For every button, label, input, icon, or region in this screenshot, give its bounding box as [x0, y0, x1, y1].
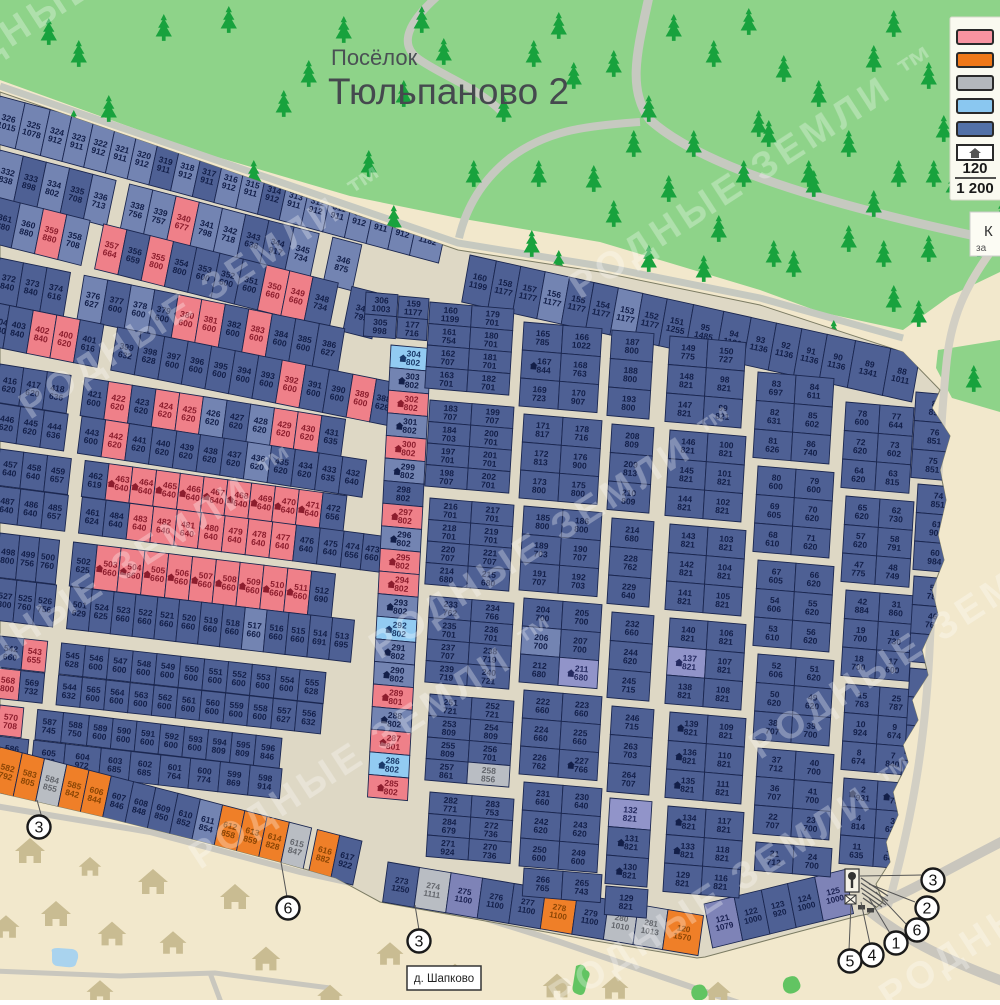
svg-text:129821: 129821 — [675, 869, 691, 889]
svg-text:246715: 246715 — [624, 712, 640, 732]
svg-text:242620: 242620 — [533, 816, 549, 836]
svg-text:553600: 553600 — [255, 671, 271, 691]
svg-text:514691: 514691 — [312, 627, 329, 647]
svg-text:470640: 470640 — [280, 496, 297, 516]
svg-text:218701: 218701 — [441, 522, 457, 542]
svg-text:161754: 161754 — [441, 326, 457, 346]
svg-text:479640: 479640 — [227, 525, 244, 545]
svg-text:297802: 297802 — [397, 507, 413, 527]
svg-text:3: 3 — [415, 934, 424, 951]
svg-text:243620: 243620 — [572, 819, 588, 839]
svg-text:170907: 170907 — [570, 387, 586, 407]
svg-text:560600: 560600 — [204, 697, 220, 717]
svg-text:559600: 559600 — [228, 700, 244, 720]
svg-text:Тюльпаново 2: Тюльпаново 2 — [328, 71, 569, 112]
svg-text:181701: 181701 — [482, 351, 498, 371]
svg-text:258856: 258856 — [481, 765, 497, 785]
svg-text:299802: 299802 — [400, 461, 416, 481]
svg-text:266765: 266765 — [535, 874, 551, 894]
svg-text:512690: 512690 — [313, 585, 330, 605]
svg-text:486640: 486640 — [23, 499, 40, 519]
svg-text:474656: 474656 — [344, 540, 361, 560]
svg-text:458640: 458640 — [25, 462, 42, 482]
svg-text:205700: 205700 — [574, 607, 590, 627]
svg-text:188800: 188800 — [623, 365, 639, 385]
svg-text:250600: 250600 — [531, 844, 547, 864]
svg-text:305998: 305998 — [372, 317, 388, 337]
svg-text:464640: 464640 — [137, 476, 154, 496]
svg-text:551600: 551600 — [207, 666, 223, 686]
svg-text:459657: 459657 — [49, 465, 66, 485]
svg-text:593600: 593600 — [187, 733, 204, 753]
svg-text:180701: 180701 — [483, 330, 499, 350]
svg-text:138821: 138821 — [677, 681, 693, 701]
svg-text:290802: 290802 — [389, 665, 405, 685]
svg-text:245715: 245715 — [621, 675, 637, 695]
svg-text:472656: 472656 — [325, 502, 342, 522]
svg-text:171817: 171817 — [535, 420, 551, 440]
svg-text:563600: 563600 — [133, 689, 149, 709]
svg-text:457640: 457640 — [2, 459, 19, 479]
svg-text:256701: 256701 — [482, 743, 498, 763]
svg-text:232660: 232660 — [624, 618, 640, 638]
svg-text:211680: 211680 — [573, 663, 589, 683]
svg-text:570708: 570708 — [2, 711, 19, 731]
svg-text:217701: 217701 — [485, 504, 501, 524]
svg-text:283753: 283753 — [485, 798, 501, 818]
svg-text:142821: 142821 — [679, 559, 695, 579]
svg-text:523660: 523660 — [115, 604, 132, 624]
svg-text:110821: 110821 — [717, 750, 733, 770]
svg-text:1 200: 1 200 — [956, 180, 994, 197]
svg-text:568800: 568800 — [0, 674, 16, 694]
svg-text:272736: 272736 — [483, 820, 499, 840]
svg-text:590600: 590600 — [116, 725, 133, 745]
svg-text:519660: 519660 — [202, 614, 219, 634]
svg-text:521660: 521660 — [159, 609, 176, 629]
svg-text:143821: 143821 — [680, 530, 696, 550]
svg-text:475640: 475640 — [322, 538, 339, 558]
svg-text:223660: 223660 — [574, 699, 590, 719]
svg-text:1: 1 — [892, 936, 901, 953]
svg-text:190707: 190707 — [572, 543, 588, 563]
svg-text:558600: 558600 — [252, 702, 268, 722]
svg-text:214680: 214680 — [624, 524, 640, 544]
svg-text:192703: 192703 — [570, 571, 586, 591]
svg-text:1591177: 1591177 — [403, 298, 423, 318]
svg-text:547600: 547600 — [112, 655, 128, 675]
svg-text:285802: 285802 — [383, 778, 399, 798]
svg-text:601764: 601764 — [166, 762, 182, 782]
svg-text:183707: 183707 — [443, 403, 459, 423]
svg-text:282771: 282771 — [443, 795, 459, 815]
svg-text:102821: 102821 — [715, 496, 731, 516]
svg-text:4: 4 — [868, 948, 877, 965]
svg-text:149775: 149775 — [680, 342, 696, 362]
svg-text:596846: 596846 — [260, 742, 277, 762]
svg-text:177716: 177716 — [404, 319, 420, 339]
svg-text:201701: 201701 — [482, 449, 498, 469]
svg-text:589600: 589600 — [92, 722, 109, 742]
svg-text:109821: 109821 — [718, 721, 734, 741]
svg-text:208809: 208809 — [624, 430, 640, 450]
svg-text:244620: 244620 — [623, 647, 639, 667]
svg-text:471640: 471640 — [304, 499, 321, 519]
svg-text:202701: 202701 — [481, 471, 497, 491]
svg-text:303802: 303802 — [404, 371, 420, 391]
svg-text:587745: 587745 — [41, 716, 58, 736]
svg-text:Посёлок: Посёлок — [331, 45, 418, 70]
svg-text:222660: 222660 — [535, 696, 551, 716]
svg-text:129821: 129821 — [618, 892, 634, 912]
svg-text:588750: 588750 — [67, 719, 84, 739]
svg-text:117821: 117821 — [716, 815, 732, 835]
svg-text:176900: 176900 — [572, 451, 588, 471]
svg-text:133821: 133821 — [680, 841, 696, 861]
svg-text:187800: 187800 — [624, 336, 640, 356]
svg-text:231660: 231660 — [535, 788, 551, 808]
svg-text:554600: 554600 — [279, 674, 295, 694]
svg-text:225660: 225660 — [572, 727, 588, 747]
svg-text:220707: 220707 — [440, 544, 456, 564]
svg-text:229640: 229640 — [621, 581, 637, 601]
svg-text:д. Шапково: д. Шапково — [414, 973, 474, 985]
svg-text:134821: 134821 — [681, 812, 697, 832]
svg-text:511660: 511660 — [292, 582, 309, 602]
svg-text:509660: 509660 — [245, 576, 262, 596]
svg-text:300802: 300802 — [401, 439, 417, 459]
svg-text:549600: 549600 — [160, 660, 176, 680]
svg-text:1601199: 1601199 — [440, 305, 460, 325]
svg-text:465640: 465640 — [161, 480, 178, 500]
svg-text:182701: 182701 — [481, 373, 497, 393]
svg-text:485657: 485657 — [46, 502, 63, 522]
svg-text:284679: 284679 — [441, 816, 457, 836]
svg-text:463640: 463640 — [114, 473, 131, 493]
svg-text:548600: 548600 — [136, 658, 152, 678]
svg-text:167844: 167844 — [536, 356, 552, 376]
svg-text:477640: 477640 — [274, 531, 291, 551]
svg-text:136821: 136821 — [682, 747, 698, 767]
svg-text:478640: 478640 — [251, 528, 268, 548]
svg-text:150727: 150727 — [718, 345, 734, 365]
svg-text:172813: 172813 — [533, 448, 549, 468]
svg-text:2741111: 2741111 — [423, 881, 443, 901]
svg-text:602685: 602685 — [136, 758, 152, 778]
svg-text:298802: 298802 — [396, 484, 412, 504]
svg-text:147821: 147821 — [677, 399, 693, 419]
svg-text:271924: 271924 — [440, 838, 456, 858]
svg-text:264707: 264707 — [621, 769, 637, 789]
svg-text:6: 6 — [913, 923, 922, 940]
svg-text:476640: 476640 — [298, 534, 315, 554]
svg-text:550600: 550600 — [183, 663, 199, 683]
svg-text:555628: 555628 — [304, 677, 320, 697]
svg-text:562600: 562600 — [157, 692, 173, 712]
svg-text:224660: 224660 — [533, 724, 549, 744]
svg-text:101821: 101821 — [717, 468, 733, 488]
svg-text:191707: 191707 — [531, 568, 547, 588]
svg-text:565600: 565600 — [85, 684, 101, 704]
svg-text:132821: 132821 — [622, 804, 638, 824]
svg-text:295802: 295802 — [395, 552, 411, 572]
svg-text:К: К — [984, 223, 993, 240]
svg-text:564600: 564600 — [109, 686, 125, 706]
svg-text:1661022: 1661022 — [571, 331, 592, 351]
svg-text:6: 6 — [284, 901, 293, 918]
svg-text:105821: 105821 — [715, 590, 731, 610]
svg-text:257861: 257861 — [439, 761, 455, 781]
svg-text:148821: 148821 — [679, 371, 695, 391]
svg-text:561600: 561600 — [180, 694, 196, 714]
svg-text:197701: 197701 — [440, 446, 456, 466]
svg-text:544632: 544632 — [61, 681, 77, 701]
svg-text:219701: 219701 — [483, 526, 499, 546]
svg-text:226762: 226762 — [531, 752, 547, 772]
svg-text:498800: 498800 — [0, 546, 16, 566]
svg-text:301802: 301802 — [402, 416, 418, 436]
svg-text:594809: 594809 — [211, 736, 228, 756]
svg-text:302802: 302802 — [403, 394, 419, 414]
svg-text:179701: 179701 — [485, 308, 501, 328]
svg-text:520660: 520660 — [181, 612, 198, 632]
svg-text:462619: 462619 — [87, 470, 104, 490]
svg-text:227766: 227766 — [573, 755, 589, 775]
svg-text:599869: 599869 — [226, 768, 242, 788]
svg-text:270736: 270736 — [482, 841, 498, 861]
svg-text:517660: 517660 — [246, 620, 263, 640]
svg-text:108821: 108821 — [715, 684, 731, 704]
svg-text:173800: 173800 — [531, 476, 547, 496]
svg-text:556632: 556632 — [301, 707, 317, 727]
svg-text:200701: 200701 — [483, 428, 499, 448]
svg-text:3: 3 — [35, 820, 44, 837]
svg-text:296802: 296802 — [396, 529, 412, 549]
svg-text:304802: 304802 — [406, 348, 422, 368]
svg-text:168763: 168763 — [572, 359, 588, 379]
svg-text:103821: 103821 — [718, 533, 734, 553]
svg-text:199707: 199707 — [485, 406, 501, 426]
svg-text:592600: 592600 — [163, 730, 180, 750]
svg-text:178716: 178716 — [574, 423, 590, 443]
svg-text:137821: 137821 — [682, 653, 698, 673]
svg-text:522660: 522660 — [137, 607, 154, 627]
svg-text:545628: 545628 — [64, 650, 80, 670]
svg-text:507660: 507660 — [197, 570, 214, 590]
svg-text:184703: 184703 — [441, 424, 457, 444]
svg-text:111821: 111821 — [715, 778, 731, 798]
svg-text:198707: 198707 — [439, 467, 455, 487]
svg-text:249600: 249600 — [570, 847, 586, 867]
svg-text:487640: 487640 — [0, 495, 15, 515]
svg-text:120: 120 — [962, 160, 987, 177]
svg-text:515660: 515660 — [290, 625, 307, 645]
svg-text:569732: 569732 — [23, 677, 39, 697]
svg-text:265743: 265743 — [574, 877, 590, 897]
svg-text:263703: 263703 — [623, 741, 639, 761]
svg-text:3061003: 3061003 — [371, 294, 392, 314]
svg-text:130821: 130821 — [622, 861, 638, 881]
svg-text:510660: 510660 — [269, 579, 286, 599]
svg-text:139821: 139821 — [683, 718, 699, 738]
svg-text:104821: 104821 — [717, 562, 733, 582]
svg-text:228762: 228762 — [623, 553, 639, 573]
svg-text:591600: 591600 — [139, 728, 156, 748]
svg-text:162707: 162707 — [440, 348, 456, 368]
svg-text:473660: 473660 — [364, 543, 381, 563]
svg-text:5: 5 — [846, 954, 855, 971]
svg-text:499756: 499756 — [19, 549, 36, 569]
svg-text:144821: 144821 — [677, 493, 693, 513]
svg-text:216701: 216701 — [443, 501, 459, 521]
svg-text:518660: 518660 — [224, 617, 241, 637]
svg-text:140821: 140821 — [680, 624, 696, 644]
svg-text:107821: 107821 — [717, 656, 733, 676]
svg-text:165785: 165785 — [535, 328, 551, 348]
svg-text:516660: 516660 — [268, 622, 285, 642]
svg-text:595809: 595809 — [235, 739, 252, 759]
svg-text:603685: 603685 — [107, 755, 123, 775]
svg-text:600774: 600774 — [196, 765, 212, 785]
svg-text:230640: 230640 — [574, 791, 590, 811]
svg-text:506660: 506660 — [173, 567, 190, 587]
svg-text:508660: 508660 — [221, 573, 238, 593]
svg-text:131821: 131821 — [624, 833, 640, 853]
svg-text:237707: 237707 — [440, 642, 456, 662]
svg-text:552600: 552600 — [231, 668, 247, 688]
svg-text:254809: 254809 — [483, 722, 499, 742]
svg-text:500760: 500760 — [39, 551, 56, 571]
svg-text:546600: 546600 — [88, 652, 104, 672]
svg-text:141821: 141821 — [677, 587, 693, 607]
svg-text:255809: 255809 — [440, 740, 456, 760]
svg-text:3: 3 — [929, 873, 938, 890]
svg-text:163701: 163701 — [439, 369, 455, 389]
svg-text:484640: 484640 — [108, 510, 125, 530]
svg-text:за: за — [976, 243, 987, 254]
svg-text:513695: 513695 — [333, 630, 350, 650]
svg-text:207700: 207700 — [572, 635, 588, 655]
svg-text:193800: 193800 — [621, 393, 637, 413]
svg-text:234766: 234766 — [485, 602, 501, 622]
svg-text:252721: 252721 — [485, 700, 501, 720]
svg-text:135821: 135821 — [680, 775, 696, 795]
svg-text:106821: 106821 — [718, 627, 734, 647]
svg-text:461624: 461624 — [84, 507, 101, 527]
svg-text:169723: 169723 — [531, 384, 547, 404]
svg-text:294802: 294802 — [394, 574, 410, 594]
svg-text:2: 2 — [923, 901, 932, 918]
svg-text:557627: 557627 — [276, 705, 292, 725]
